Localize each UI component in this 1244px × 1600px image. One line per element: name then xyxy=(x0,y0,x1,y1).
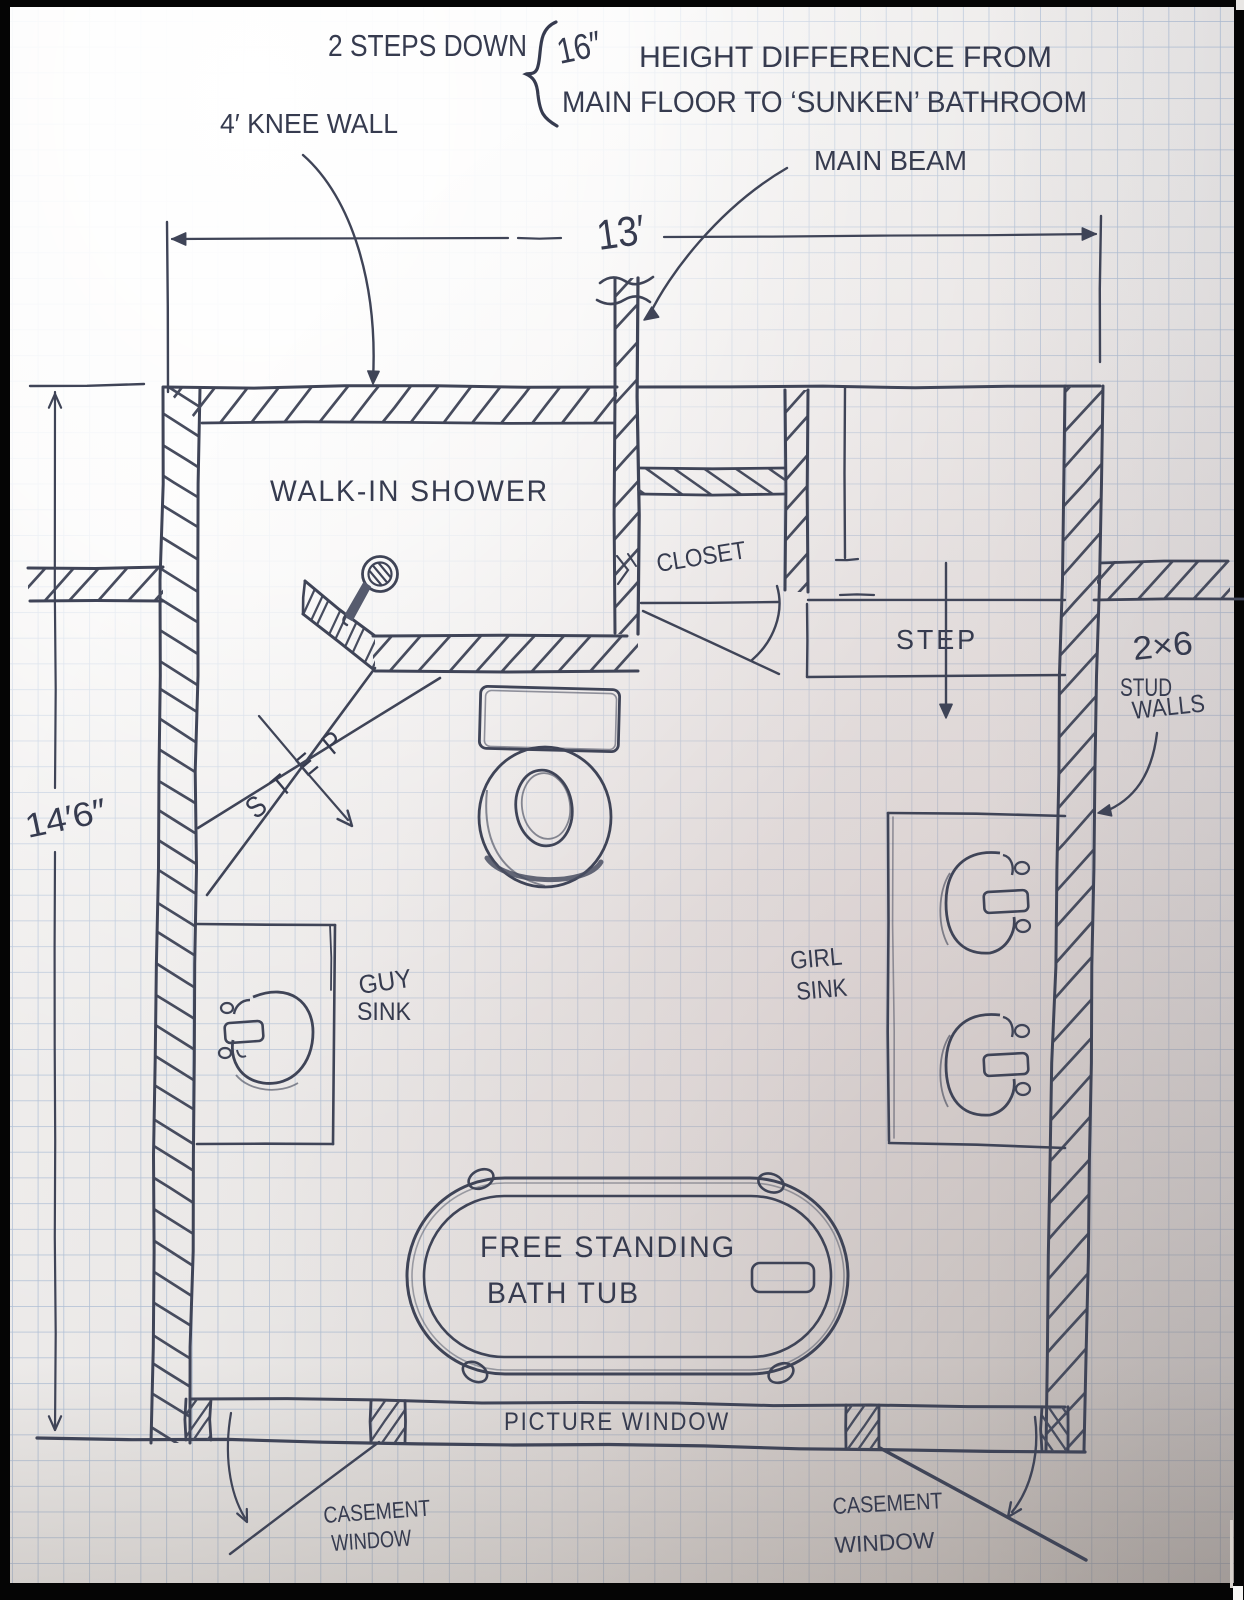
svg-text:4′ KNEE WALL: 4′ KNEE WALL xyxy=(220,108,398,139)
svg-text:STEP: STEP xyxy=(896,624,978,655)
svg-text:2×6: 2×6 xyxy=(1131,624,1195,667)
svg-text:BATH TUB: BATH TUB xyxy=(487,1277,640,1310)
svg-text:WALK-IN SHOWER: WALK-IN SHOWER xyxy=(270,475,549,508)
svg-text:MAIN FLOOR TO ‘SUNKEN’ BAT: MAIN FLOOR TO ‘SUNKEN’ BATHROOM xyxy=(562,86,1087,119)
svg-text:SINK: SINK xyxy=(357,998,411,1026)
svg-text:13′: 13′ xyxy=(594,206,648,259)
svg-text:SINK: SINK xyxy=(795,974,849,1006)
svg-text:2 STEPS DOWN: 2 STEPS DOWN xyxy=(328,28,527,63)
svg-text:PICTURE WINDOW: PICTURE WINDOW xyxy=(504,1408,730,1436)
svg-text:GIRL: GIRL xyxy=(789,943,843,975)
svg-text:WINDOW: WINDOW xyxy=(834,1527,936,1558)
svg-text:FREE STANDING: FREE STANDING xyxy=(480,1231,736,1264)
svg-text:MAIN BEAM: MAIN BEAM xyxy=(814,145,967,176)
svg-text:HEIGHT DIFFERENCE FROM: HEIGHT DIFFERENCE FROM xyxy=(639,41,1052,74)
